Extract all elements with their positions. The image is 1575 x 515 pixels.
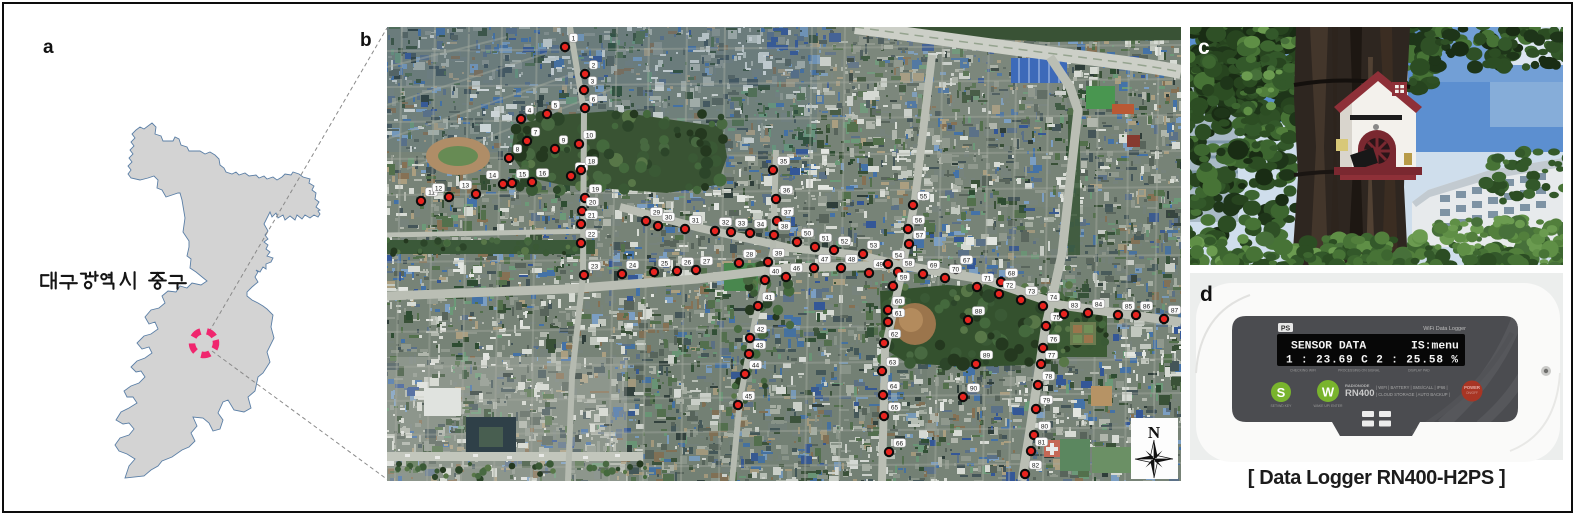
svg-text:IS:menu: IS:menu	[1411, 341, 1459, 353]
svg-text:29: 29	[653, 209, 661, 216]
svg-text:9: 9	[562, 137, 566, 144]
svg-text:13: 13	[462, 182, 470, 189]
svg-text:ON/OFF: ON/OFF	[1466, 391, 1478, 395]
svg-text:79: 79	[1043, 397, 1051, 404]
svg-text:90: 90	[970, 385, 978, 392]
svg-text:21: 21	[588, 212, 596, 219]
svg-text:30: 30	[665, 214, 673, 221]
svg-text:43: 43	[756, 342, 764, 349]
svg-text:CHECKING WIFI: CHECKING WIFI	[1290, 369, 1316, 373]
svg-text:66: 66	[896, 440, 904, 447]
svg-text:52: 52	[841, 238, 849, 245]
svg-text:36: 36	[783, 187, 791, 194]
svg-text:15: 15	[519, 171, 527, 178]
svg-text:PS: PS	[1281, 326, 1291, 333]
svg-text:69: 69	[930, 262, 938, 269]
svg-text:88: 88	[975, 308, 983, 315]
svg-text:73: 73	[1028, 288, 1036, 295]
svg-text:46: 46	[793, 265, 801, 272]
svg-text:35: 35	[780, 158, 788, 165]
svg-text:31: 31	[692, 217, 700, 224]
svg-text:44: 44	[752, 362, 760, 369]
svg-text:38: 38	[781, 223, 789, 230]
svg-text:WiFi Data Logger: WiFi Data Logger	[1423, 326, 1466, 332]
svg-text:84: 84	[1095, 301, 1103, 308]
svg-text:51: 51	[822, 235, 830, 242]
svg-text:12: 12	[435, 185, 443, 192]
svg-text:41: 41	[765, 294, 773, 301]
svg-text:86: 86	[1143, 303, 1151, 310]
svg-text:62: 62	[891, 331, 899, 338]
svg-text:| CLOUD STORAGE | AUTO BACKU: | CLOUD STORAGE | AUTO BACKUP |	[1376, 392, 1450, 397]
svg-text:55: 55	[920, 193, 928, 200]
svg-text:27: 27	[703, 258, 711, 265]
svg-text:18: 18	[588, 158, 596, 165]
svg-text:64: 64	[890, 383, 898, 390]
svg-text:45: 45	[745, 393, 753, 400]
svg-text:SET/WD KEY: SET/WD KEY	[1271, 404, 1293, 408]
svg-text:63: 63	[889, 359, 897, 366]
svg-text:6: 6	[592, 96, 596, 103]
svg-text:22: 22	[588, 231, 596, 238]
svg-text:58: 58	[905, 260, 913, 267]
svg-text:| WIFI | BATTERY | SMS/CALL |: | WIFI | BATTERY | SMS/CALL | IP66 |	[1376, 385, 1448, 390]
svg-text:81: 81	[1038, 439, 1046, 446]
svg-text:WAKE UP/ ENTER: WAKE UP/ ENTER	[1314, 404, 1343, 408]
svg-text:RN400: RN400	[1345, 388, 1375, 399]
svg-text:c: c	[1198, 36, 1210, 59]
svg-text:74: 74	[1050, 294, 1058, 301]
svg-text:76: 76	[1050, 336, 1058, 343]
svg-text:33: 33	[738, 220, 746, 227]
svg-text:49: 49	[876, 261, 884, 268]
svg-text:d: d	[1200, 283, 1213, 306]
svg-text:37: 37	[784, 209, 792, 216]
svg-text:67: 67	[963, 257, 971, 264]
svg-text:16: 16	[539, 170, 547, 177]
svg-text:48: 48	[848, 256, 856, 263]
svg-text:PROCESSING ON SIGNAL: PROCESSING ON SIGNAL	[1338, 369, 1380, 373]
svg-text:25: 25	[661, 260, 669, 267]
svg-text:65: 65	[891, 404, 899, 411]
svg-text:42: 42	[757, 326, 765, 333]
svg-text:20: 20	[589, 199, 597, 206]
svg-text:DISPLAY PAD: DISPLAY PAD	[1408, 369, 1430, 373]
svg-text:14: 14	[489, 172, 497, 179]
svg-text:71: 71	[984, 275, 992, 282]
svg-text:57: 57	[916, 232, 924, 239]
svg-text:59: 59	[900, 274, 908, 281]
svg-text:N: N	[1148, 423, 1161, 442]
svg-text:8: 8	[516, 146, 520, 153]
svg-text:56: 56	[915, 217, 923, 224]
svg-text:78: 78	[1045, 373, 1053, 380]
svg-text:a: a	[43, 37, 54, 58]
svg-text:23: 23	[591, 263, 599, 270]
svg-text:39: 39	[775, 250, 783, 257]
svg-text:SENSOR DATA: SENSOR DATA	[1291, 341, 1366, 353]
svg-text:POWER: POWER	[1464, 385, 1480, 390]
svg-text:77: 77	[1048, 352, 1056, 359]
svg-text:32: 32	[722, 219, 730, 226]
svg-text:82: 82	[1032, 462, 1040, 469]
svg-text:1: 1	[572, 35, 576, 42]
svg-text:72: 72	[1006, 282, 1014, 289]
svg-text:85: 85	[1125, 303, 1133, 310]
svg-text:34: 34	[757, 221, 765, 228]
svg-text:10: 10	[586, 132, 594, 139]
svg-text:53: 53	[870, 242, 878, 249]
svg-text:50: 50	[804, 230, 812, 237]
svg-text:1 : 23.69 C 2 : 25.58 %: 1 : 23.69 C 2 : 25.58 %	[1286, 355, 1458, 367]
svg-text:28: 28	[746, 251, 754, 258]
svg-text:W: W	[1322, 385, 1335, 400]
svg-text:24: 24	[629, 262, 637, 269]
svg-text:S: S	[1277, 385, 1286, 400]
svg-text:19: 19	[592, 186, 600, 193]
svg-text:7: 7	[534, 129, 538, 136]
svg-text:61: 61	[895, 310, 903, 317]
svg-text:89: 89	[983, 352, 991, 359]
svg-text:60: 60	[895, 298, 903, 305]
svg-text:68: 68	[1008, 270, 1016, 277]
svg-text:70: 70	[952, 266, 960, 273]
svg-text:5: 5	[554, 102, 558, 109]
svg-text:4: 4	[528, 107, 532, 114]
svg-text:47: 47	[821, 256, 829, 263]
svg-text:80: 80	[1041, 423, 1049, 430]
svg-text:83: 83	[1071, 302, 1079, 309]
svg-text:87: 87	[1171, 307, 1179, 314]
svg-text:54: 54	[895, 252, 903, 259]
svg-text:26: 26	[684, 259, 692, 266]
svg-text:3: 3	[591, 78, 595, 85]
svg-text:40: 40	[772, 268, 780, 275]
svg-text:2: 2	[592, 62, 596, 69]
